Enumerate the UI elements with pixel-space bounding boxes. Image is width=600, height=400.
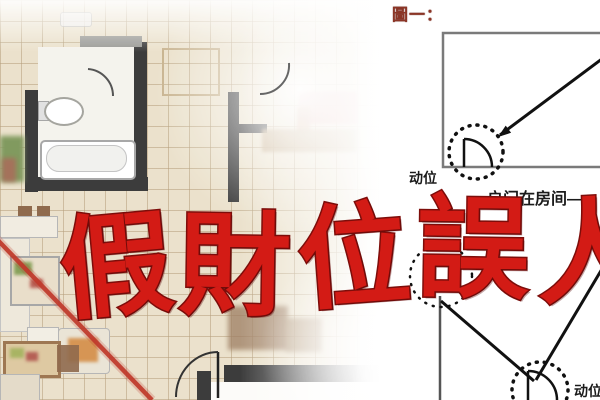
door-zone-dashed-circle [512, 362, 568, 400]
sight-line [500, 47, 600, 135]
figure-title: 圖一： [392, 1, 443, 25]
door-arc [464, 139, 492, 167]
door-arc [176, 352, 218, 397]
scene: 动位 户门在房间— 动位 圖一： 假 財 位 誤 人 [0, 0, 600, 400]
door-arc [88, 69, 113, 96]
door-arc [260, 63, 289, 94]
sight-line [441, 301, 534, 381]
room-outline-top [443, 33, 600, 167]
door-position-label-top: 动位 [409, 170, 437, 186]
linework-overlay: 动位 户门在房间— 动位 [0, 0, 600, 400]
door-position-label-bottom: 动位 [574, 383, 600, 399]
sight-line [536, 247, 600, 380]
caption-top: 户门在房间— [487, 189, 583, 208]
door-zone-dashed-circle [449, 125, 503, 179]
door-arc [528, 371, 557, 400]
